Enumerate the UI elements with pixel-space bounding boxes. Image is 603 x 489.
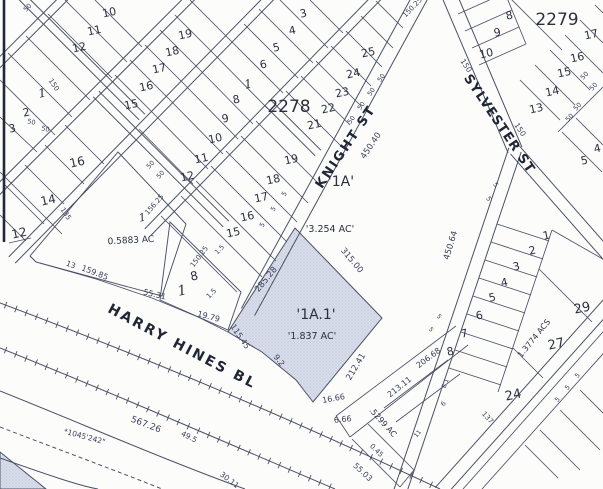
dimension-label: 6.66 bbox=[333, 414, 352, 425]
block-number: 2279 bbox=[535, 10, 578, 30]
block-number: 2278 bbox=[267, 97, 310, 117]
dimension-label: 50 bbox=[27, 117, 37, 127]
map-canvas: 1011121231614121918171615891011121918171… bbox=[0, 0, 603, 489]
parcel-label: '1.837 AC' bbox=[288, 331, 336, 342]
parcel-label: '3.254 AC' bbox=[306, 224, 354, 235]
dimension-label: 50 bbox=[41, 124, 51, 134]
plat-map: 1011121231614121918171615891011121918171… bbox=[0, 0, 603, 489]
parcel-label: '1A.1' bbox=[296, 307, 335, 323]
